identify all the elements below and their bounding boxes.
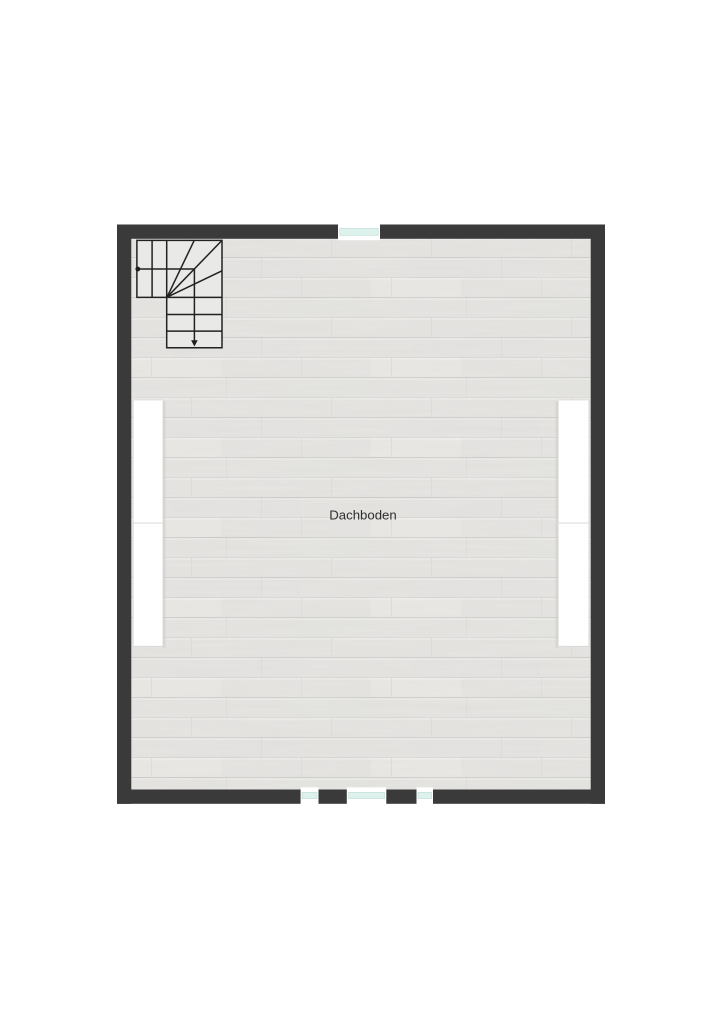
svg-text:Dachboden: Dachboden	[329, 507, 396, 522]
